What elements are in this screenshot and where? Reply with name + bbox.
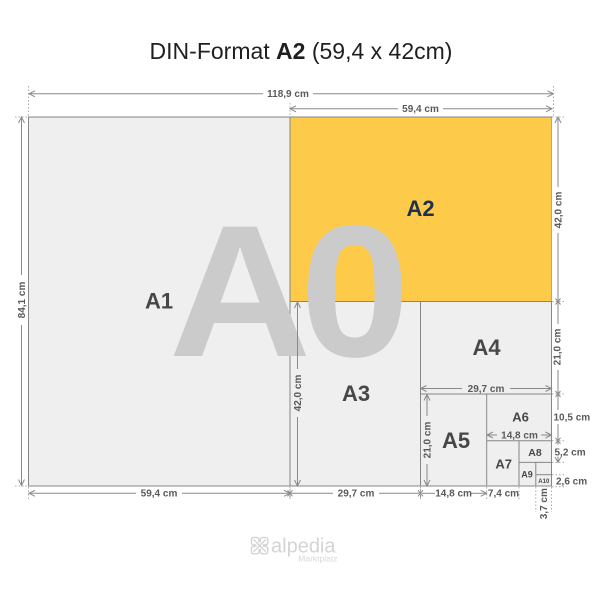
svg-text:14,8 cm: 14,8 cm: [435, 489, 472, 500]
svg-text:7,4 cm: 7,4 cm: [488, 489, 519, 500]
svg-text:5,2 cm: 5,2 cm: [555, 447, 586, 458]
svg-text:29,7 cm: 29,7 cm: [468, 384, 505, 395]
svg-text:DIN-Format A2 (59,4 x 42cm): DIN-Format A2 (59,4 x 42cm): [150, 38, 453, 64]
svg-text:59,4 cm: 59,4 cm: [141, 489, 178, 500]
svg-text:A5: A5: [442, 428, 470, 453]
svg-text:A8: A8: [528, 447, 542, 459]
svg-text:14,8 cm: 14,8 cm: [501, 430, 538, 441]
svg-text:42,0 cm: 42,0 cm: [554, 192, 565, 229]
svg-text:10,5 cm: 10,5 cm: [554, 412, 591, 423]
svg-text:2,6 cm: 2,6 cm: [556, 476, 587, 487]
svg-text:Marktplatz: Marktplatz: [298, 554, 337, 564]
svg-text:A9: A9: [521, 470, 533, 480]
svg-text:42,0 cm: 42,0 cm: [293, 375, 304, 412]
svg-text:A10: A10: [538, 479, 550, 485]
svg-text:84,1 cm: 84,1 cm: [17, 282, 28, 319]
svg-text:A3: A3: [342, 381, 370, 406]
svg-text:A7: A7: [495, 456, 512, 471]
svg-text:21,0 cm: 21,0 cm: [423, 422, 434, 459]
svg-text:59,4 cm: 59,4 cm: [402, 104, 439, 115]
svg-text:A: A: [169, 186, 312, 396]
svg-text:0: 0: [300, 186, 410, 396]
svg-text:A1: A1: [145, 288, 173, 313]
svg-text:21,0 cm: 21,0 cm: [553, 329, 564, 366]
svg-text:A4: A4: [472, 335, 501, 360]
svg-text:3,7 cm: 3,7 cm: [539, 488, 550, 519]
svg-text:118,9 cm: 118,9 cm: [267, 89, 309, 100]
svg-text:29,7 cm: 29,7 cm: [338, 489, 375, 500]
svg-text:A6: A6: [512, 409, 529, 424]
svg-text:A2: A2: [407, 196, 435, 221]
